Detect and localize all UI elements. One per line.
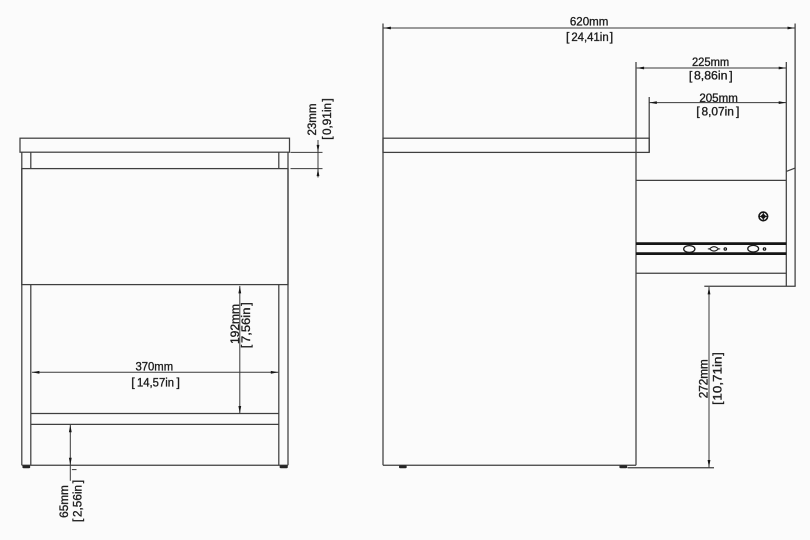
svg-text:0,91in: 0,91in: [320, 103, 334, 135]
svg-text:]: ]: [239, 302, 253, 305]
svg-text:620mm: 620mm: [570, 15, 608, 29]
svg-text:[: [: [239, 344, 253, 348]
svg-text:24,41in: 24,41in: [571, 30, 608, 44]
svg-text:]: ]: [729, 69, 732, 83]
svg-text:8,07in: 8,07in: [701, 104, 734, 118]
svg-text:225mm: 225mm: [692, 55, 729, 69]
svg-text:272mm: 272mm: [696, 359, 710, 398]
svg-text:8,86in: 8,86in: [694, 69, 728, 83]
svg-text:]: ]: [610, 30, 613, 44]
svg-text:[: [: [131, 375, 135, 389]
svg-text:[: [: [689, 69, 693, 83]
svg-text:]: ]: [711, 352, 725, 355]
svg-text:205mm: 205mm: [699, 91, 738, 105]
svg-text:23mm: 23mm: [305, 104, 319, 136]
svg-text:65mm: 65mm: [57, 485, 71, 518]
svg-text:14,57in: 14,57in: [137, 375, 174, 389]
svg-text:2,56in: 2,56in: [71, 485, 85, 517]
svg-text:]: ]: [320, 98, 334, 101]
svg-text:[: [: [711, 401, 725, 405]
svg-text:]: ]: [736, 104, 739, 118]
svg-text:7,56in: 7,56in: [239, 307, 253, 343]
svg-text:[: [: [320, 136, 334, 140]
svg-text:10,71in: 10,71in: [711, 356, 725, 400]
svg-text:]: ]: [71, 480, 85, 483]
svg-text:[: [: [71, 518, 85, 522]
svg-text:[: [: [566, 30, 570, 44]
svg-text:370mm: 370mm: [135, 360, 173, 374]
svg-text:]: ]: [176, 375, 179, 389]
svg-text:[: [: [696, 104, 700, 118]
